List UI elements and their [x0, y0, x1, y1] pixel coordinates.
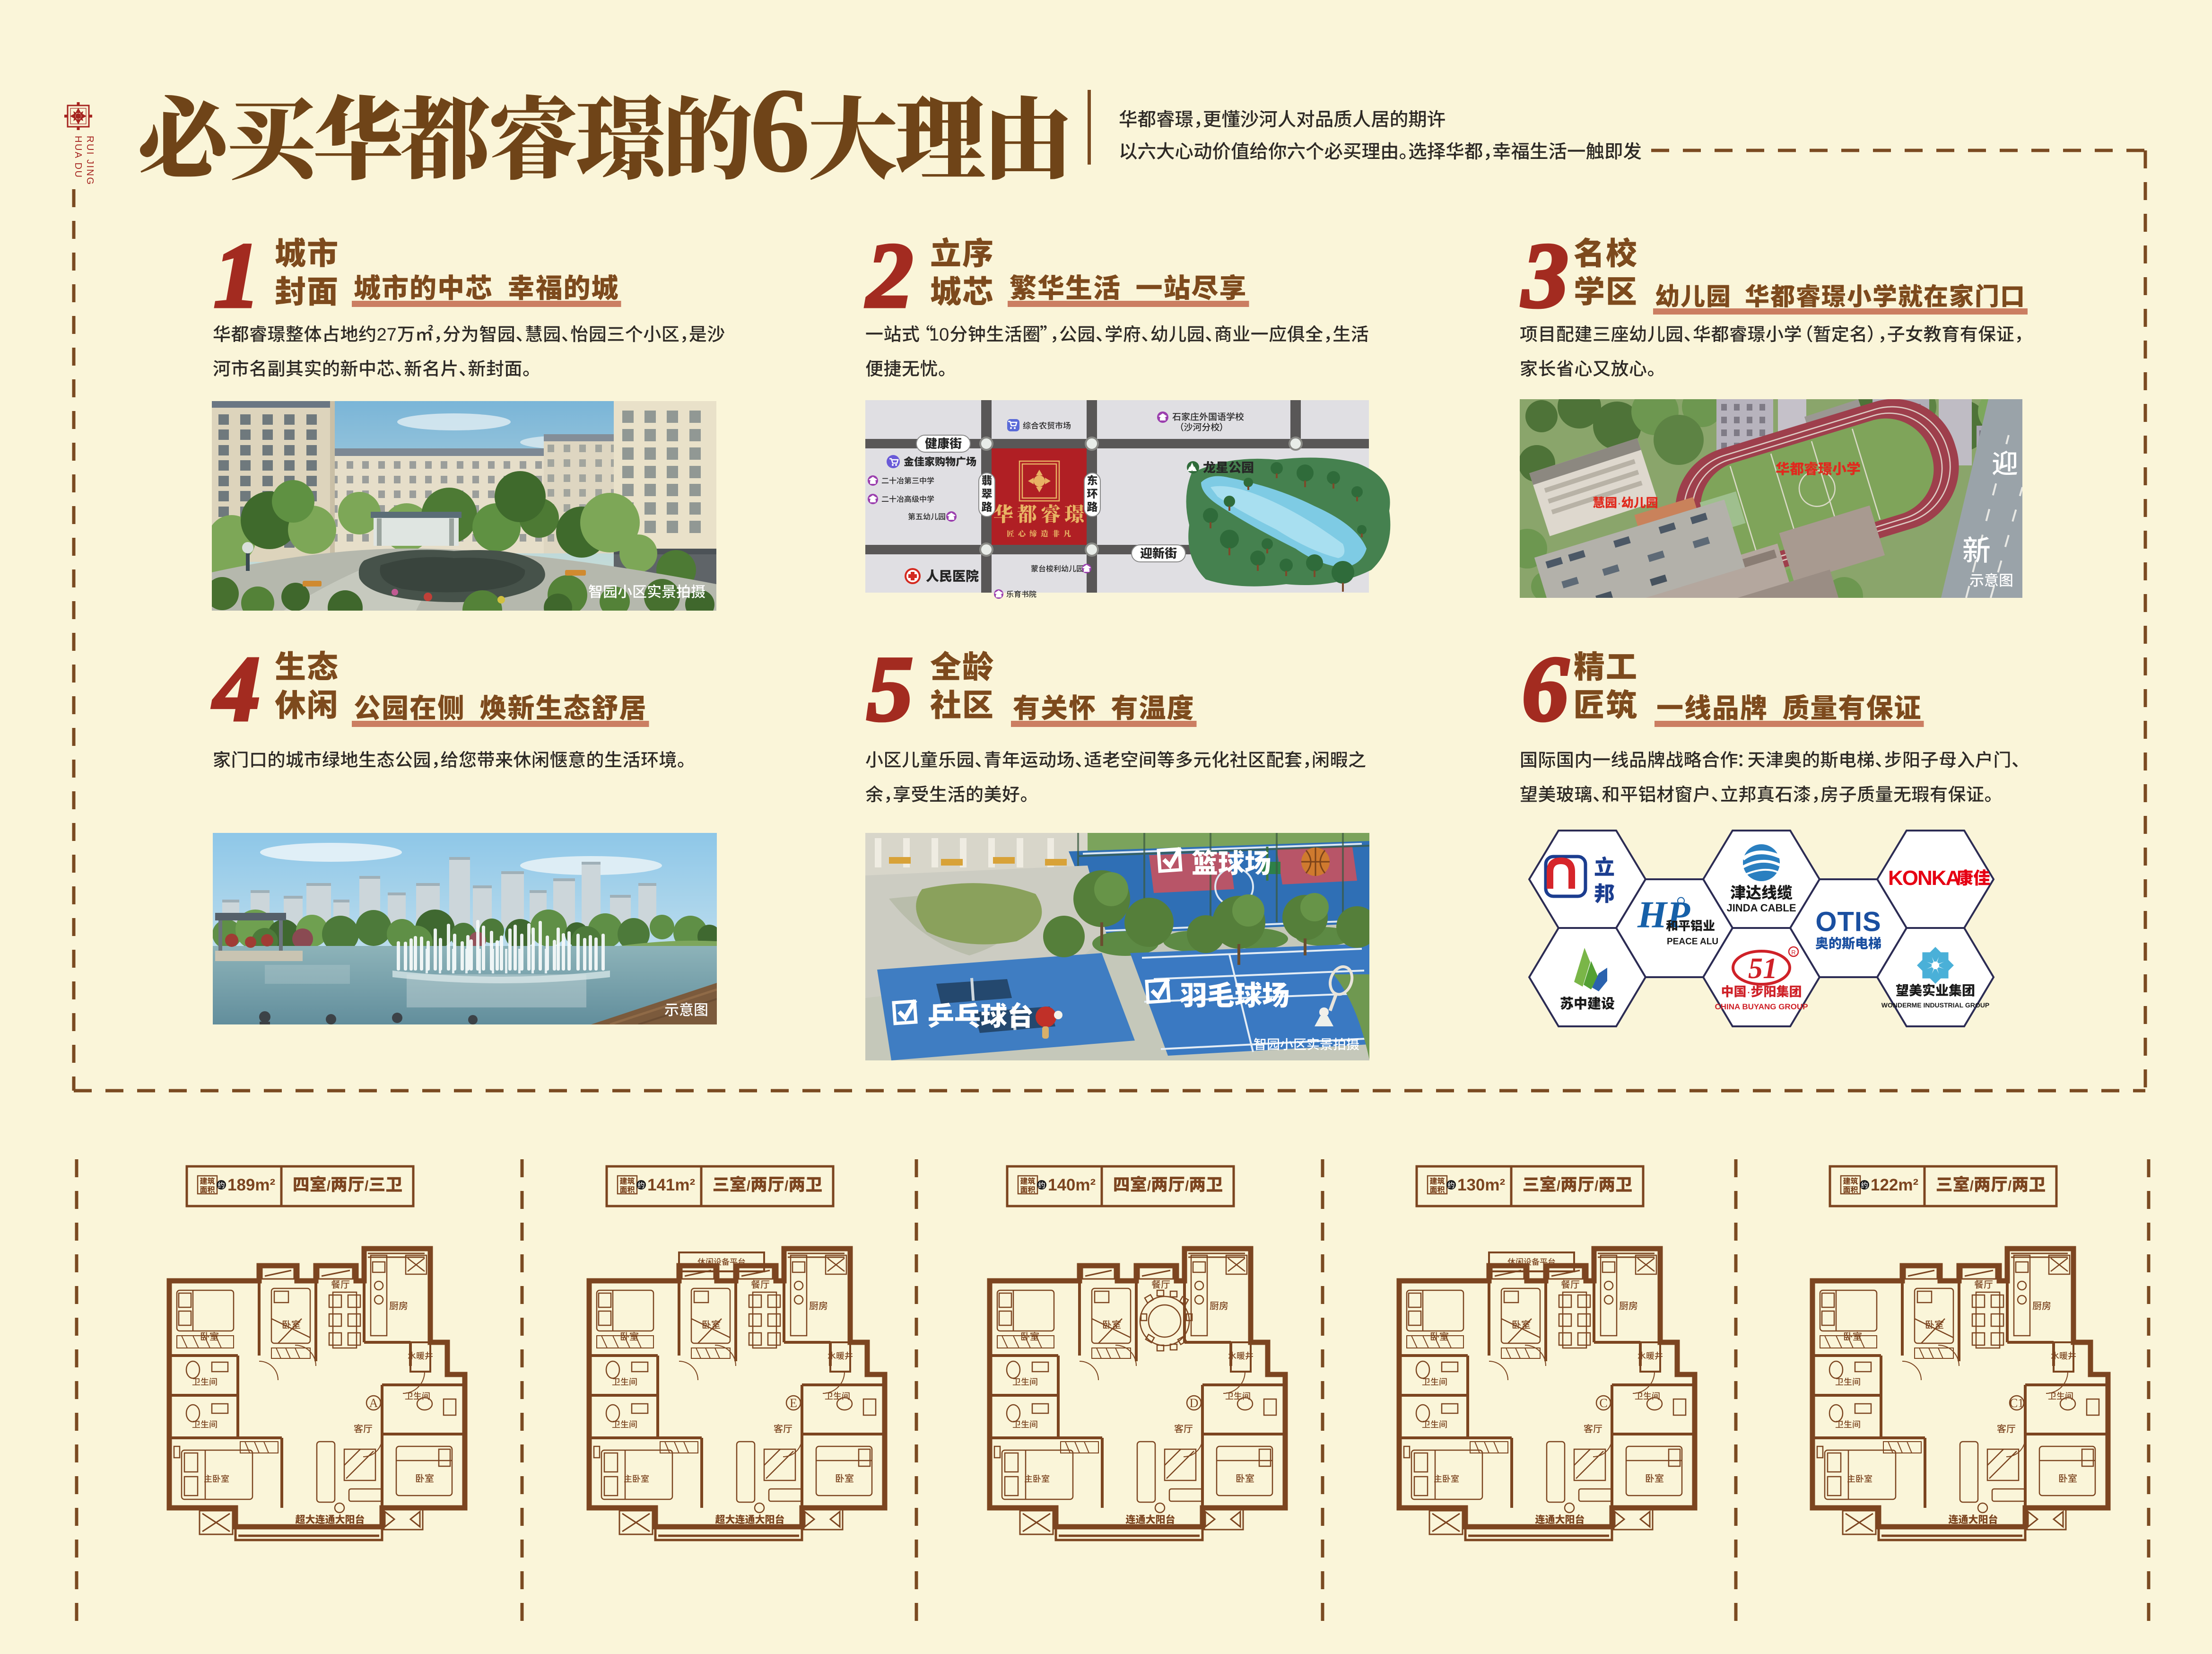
svg-text:D: D	[1190, 1396, 1199, 1410]
svg-text:140m²: 140m²	[1048, 1176, 1096, 1194]
svg-text:WONDERME INDUSTRIAL GROUP: WONDERME INDUSTRIAL GROUP	[1881, 1001, 1989, 1009]
svg-text:3: 3	[1521, 224, 1568, 327]
svg-text:E: E	[790, 1396, 797, 1410]
svg-text:R: R	[1791, 949, 1795, 956]
svg-text:·: ·	[1747, 985, 1751, 999]
svg-text:RUI JING: RUI JING	[85, 136, 95, 186]
svg-text:KONKA: KONKA	[1888, 866, 1960, 890]
svg-text:·: ·	[1617, 496, 1621, 510]
svg-text:HUA DU: HUA DU	[73, 136, 83, 179]
svg-text:2: 2	[865, 224, 913, 327]
svg-text:/: /	[1970, 1178, 1974, 1194]
svg-text:51: 51	[1748, 953, 1777, 985]
svg-text:141m²: 141m²	[647, 1176, 695, 1194]
svg-text:27: 27	[376, 325, 396, 345]
svg-text:5: 5	[867, 638, 913, 740]
svg-text:/: /	[1185, 1178, 1189, 1194]
svg-text:/: /	[784, 1178, 789, 1194]
svg-text:A: A	[369, 1396, 378, 1410]
svg-text:CHINA BUYANG GROUP: CHINA BUYANG GROUP	[1715, 1002, 1808, 1011]
svg-text:189m²: 189m²	[227, 1176, 275, 1194]
svg-text:/: /	[747, 1178, 751, 1194]
svg-text:OTIS: OTIS	[1815, 907, 1881, 937]
svg-text:/: /	[1557, 1178, 1561, 1194]
svg-text:C1: C1	[2010, 1396, 2024, 1410]
svg-text:/: /	[365, 1178, 369, 1194]
svg-text:/: /	[327, 1178, 331, 1194]
svg-text:6: 6	[1522, 638, 1568, 740]
svg-text:10: 10	[929, 325, 949, 345]
svg-text:122m²: 122m²	[1871, 1176, 1918, 1194]
svg-text:/: /	[1594, 1178, 1599, 1194]
svg-text:HP: HP	[1637, 894, 1690, 936]
svg-text:/: /	[2008, 1178, 2012, 1194]
svg-text:PEACE ALU: PEACE ALU	[1667, 937, 1718, 947]
svg-text:4: 4	[212, 638, 260, 740]
svg-text:JINDA CABLE: JINDA CABLE	[1726, 902, 1796, 914]
svg-text:1: 1	[214, 224, 260, 327]
svg-text:C: C	[1599, 1396, 1607, 1410]
svg-text:/: /	[1147, 1178, 1151, 1194]
svg-text:130m²: 130m²	[1457, 1176, 1505, 1194]
svg-text:6: 6	[749, 62, 810, 198]
